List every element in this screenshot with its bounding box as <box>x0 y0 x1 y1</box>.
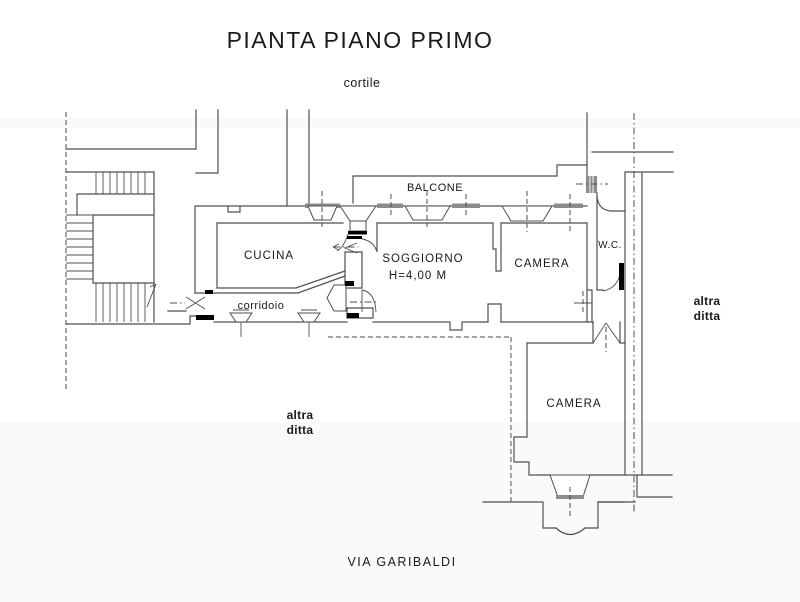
label-altra-ditta-left-2: ditta <box>287 423 314 437</box>
floor-plan-drawing: PIANTA PIANO PRIMO cortile BALCONE CUCIN… <box>0 0 800 602</box>
entrance-door <box>186 297 205 309</box>
kitchen-opening-swing <box>362 239 377 252</box>
corridor-door-arrow <box>327 285 346 311</box>
label-altra-ditta-right-1: altra <box>694 294 721 308</box>
wc-door-leaf <box>619 263 624 290</box>
livingroom-door-swing <box>362 290 376 312</box>
north-windows <box>305 191 583 235</box>
label-altra-ditta-left-1: altra <box>287 408 314 422</box>
corridor-windows <box>230 310 320 337</box>
label-cortile: cortile <box>344 76 381 90</box>
label-soggiorno: SOGGIORNO <box>382 253 463 265</box>
page-title: PIANTA PIANO PRIMO <box>227 27 494 53</box>
balcony-door <box>340 206 376 221</box>
label-camera-bottom: CAMERA <box>546 398 601 410</box>
label-corridoio: corridoio <box>238 300 285 312</box>
wc-door-swing <box>603 269 621 291</box>
label-altra-ditta-right-2: ditta <box>694 309 721 323</box>
stair-direction-arrow <box>147 284 156 307</box>
wc-room <box>576 176 625 291</box>
label-cucina: CUCINA <box>244 250 294 262</box>
label-soggiorno-height: H=4,00 M <box>389 270 447 282</box>
scan-band <box>0 422 800 602</box>
label-wc: W.C. <box>598 240 622 251</box>
label-balcone: BALCONE <box>407 182 463 194</box>
balcony <box>353 165 587 203</box>
label-camera-top: CAMERA <box>514 258 569 270</box>
scan-band <box>0 118 800 128</box>
stairwell <box>66 110 309 324</box>
label-via-garibaldi: VIA GARIBALDI <box>347 555 456 569</box>
floor-plan-sheet: PIANTA PIANO PRIMO cortile BALCONE CUCIN… <box>0 0 800 602</box>
